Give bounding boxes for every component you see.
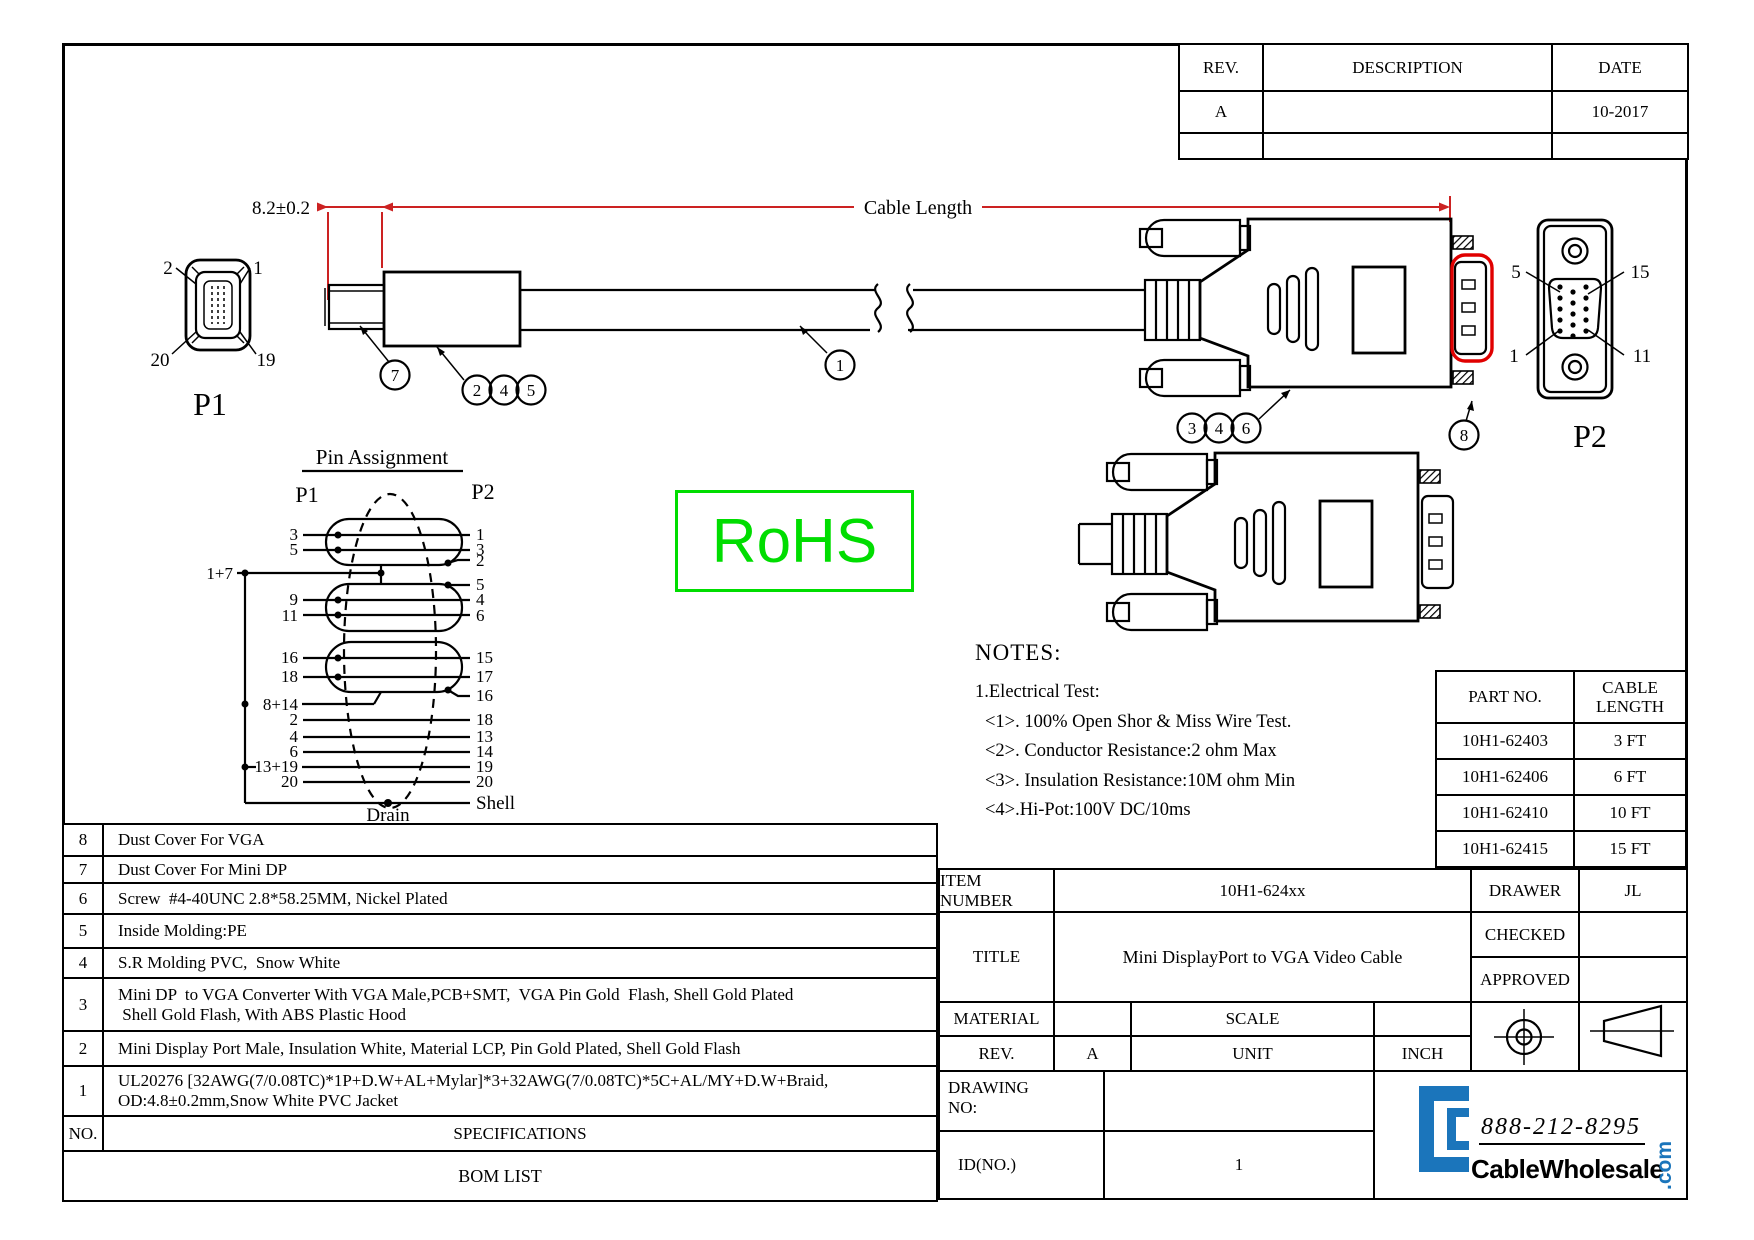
material-label: MATERIAL [938, 1001, 1055, 1037]
unit-label: UNIT [1130, 1035, 1375, 1072]
bom-no: 3 [63, 978, 103, 1031]
bom-spec-header: SPECIFICATIONS [103, 1116, 937, 1151]
checked-value [1578, 911, 1688, 958]
drawing-sheet: REV. DESCRIPTION DATE A 10-2017 RoHS NOT… [0, 0, 1754, 1240]
logo-tld: .com [1653, 1141, 1677, 1190]
bom-no: 5 [63, 914, 103, 948]
cable-length: 3 FT [1574, 723, 1686, 759]
bom-spec: Dust Cover For Mini DP [103, 856, 937, 883]
bom-no-header: NO. [63, 1116, 103, 1151]
approved-label: APPROVED [1470, 956, 1580, 1003]
bom-spec: UL20276 [32AWG(7/0.08TC)*1P+D.W+AL+Mylar… [103, 1066, 937, 1116]
projection-symbol-cell [1470, 1001, 1580, 1072]
notes-block: NOTES: 1.Electrical Test: <1>. 100% Open… [975, 640, 1335, 821]
part-no-header: PART NO. [1436, 671, 1574, 723]
title-label: TITLE [938, 911, 1055, 1003]
part-number-table: PART NO. CABLE LENGTH 10H1-624033 FT 10H… [1435, 670, 1687, 868]
bom-no: 2 [63, 1031, 103, 1066]
date-header: DATE [1552, 44, 1688, 91]
bom-footer: BOM LIST [63, 1151, 937, 1201]
bom-spec: Mini Display Port Male, Insulation White… [103, 1031, 937, 1066]
bom-spec: Inside Molding:PE [103, 914, 937, 948]
cable-length: 15 FT [1574, 831, 1686, 867]
part-no: 10H1-62406 [1436, 759, 1574, 795]
bom-spec: Screw #4-40UNC 2.8*58.25MM, Nickel Plate… [103, 883, 937, 914]
rev-value-cell: A [1053, 1035, 1132, 1072]
rev-header: REV. [1179, 44, 1263, 91]
cablewholesale-logo: 888-212-8295 CableWholesale .com [1373, 1070, 1688, 1200]
logo-phone: 888-212-8295 [1479, 1114, 1645, 1145]
note-line: <3>. Insulation Resistance:10M ohm Min [975, 771, 1335, 792]
note-line: <1>. 100% Open Shor & Miss Wire Test. [975, 712, 1335, 733]
description-header: DESCRIPTION [1263, 44, 1552, 91]
drawing-title: Mini DisplayPort to VGA Video Cable [1053, 911, 1472, 1003]
bom-no: 8 [63, 824, 103, 856]
description-value [1263, 91, 1552, 133]
revision-table: REV. DESCRIPTION DATE A 10-2017 [1178, 43, 1689, 160]
bom-no: 1 [63, 1066, 103, 1116]
cone-symbol-cell [1578, 1001, 1688, 1072]
approved-value [1578, 956, 1688, 1003]
scale-value [1373, 1001, 1472, 1037]
cable-length: 10 FT [1574, 795, 1686, 831]
note-line: <2>. Conductor Resistance:2 ohm Max [975, 741, 1335, 762]
id-label: ID(NO.) [938, 1130, 1105, 1200]
part-no: 10H1-62403 [1436, 723, 1574, 759]
cable-length: 6 FT [1574, 759, 1686, 795]
scale-label: SCALE [1130, 1001, 1375, 1037]
item-number-value: 10H1-624xx [1053, 868, 1472, 913]
logo-name: CableWholesale [1471, 1154, 1663, 1185]
bom-table: 8 Dust Cover For VGA 7 Dust Cover For Mi… [62, 823, 938, 1202]
drawer-label: DRAWER [1470, 868, 1580, 913]
cable-length-header: CABLE LENGTH [1574, 671, 1686, 723]
part-no: 10H1-62415 [1436, 831, 1574, 867]
id-value: 1 [1103, 1130, 1375, 1200]
rohs-mark: RoHS [675, 490, 914, 592]
drawer-value: JL [1578, 868, 1688, 913]
bom-no: 7 [63, 856, 103, 883]
checked-label: CHECKED [1470, 911, 1580, 958]
unit-value: INCH [1373, 1035, 1472, 1072]
notes-heading: NOTES: [975, 640, 1335, 666]
bom-no: 6 [63, 883, 103, 914]
material-value [1053, 1001, 1132, 1037]
note-line: 1.Electrical Test: [975, 682, 1335, 703]
rev-label: REV. [938, 1035, 1055, 1072]
part-no: 10H1-62410 [1436, 795, 1574, 831]
logo-c-inner-icon [1447, 1108, 1469, 1150]
bom-spec: S.R Molding PVC, Snow White [103, 948, 937, 978]
bom-spec: Mini DP to VGA Converter With VGA Male,P… [103, 978, 937, 1031]
drawing-no-value [1103, 1070, 1375, 1132]
bom-spec: Dust Cover For VGA [103, 824, 937, 856]
note-line: <4>.Hi-Pot:100V DC/10ms [975, 800, 1335, 821]
rev-value: A [1179, 91, 1263, 133]
drawing-no-label: DRAWING NO: [938, 1070, 1105, 1132]
date-value: 10-2017 [1552, 91, 1688, 133]
bom-no: 4 [63, 948, 103, 978]
item-number-label: ITEM NUMBER [938, 868, 1055, 913]
